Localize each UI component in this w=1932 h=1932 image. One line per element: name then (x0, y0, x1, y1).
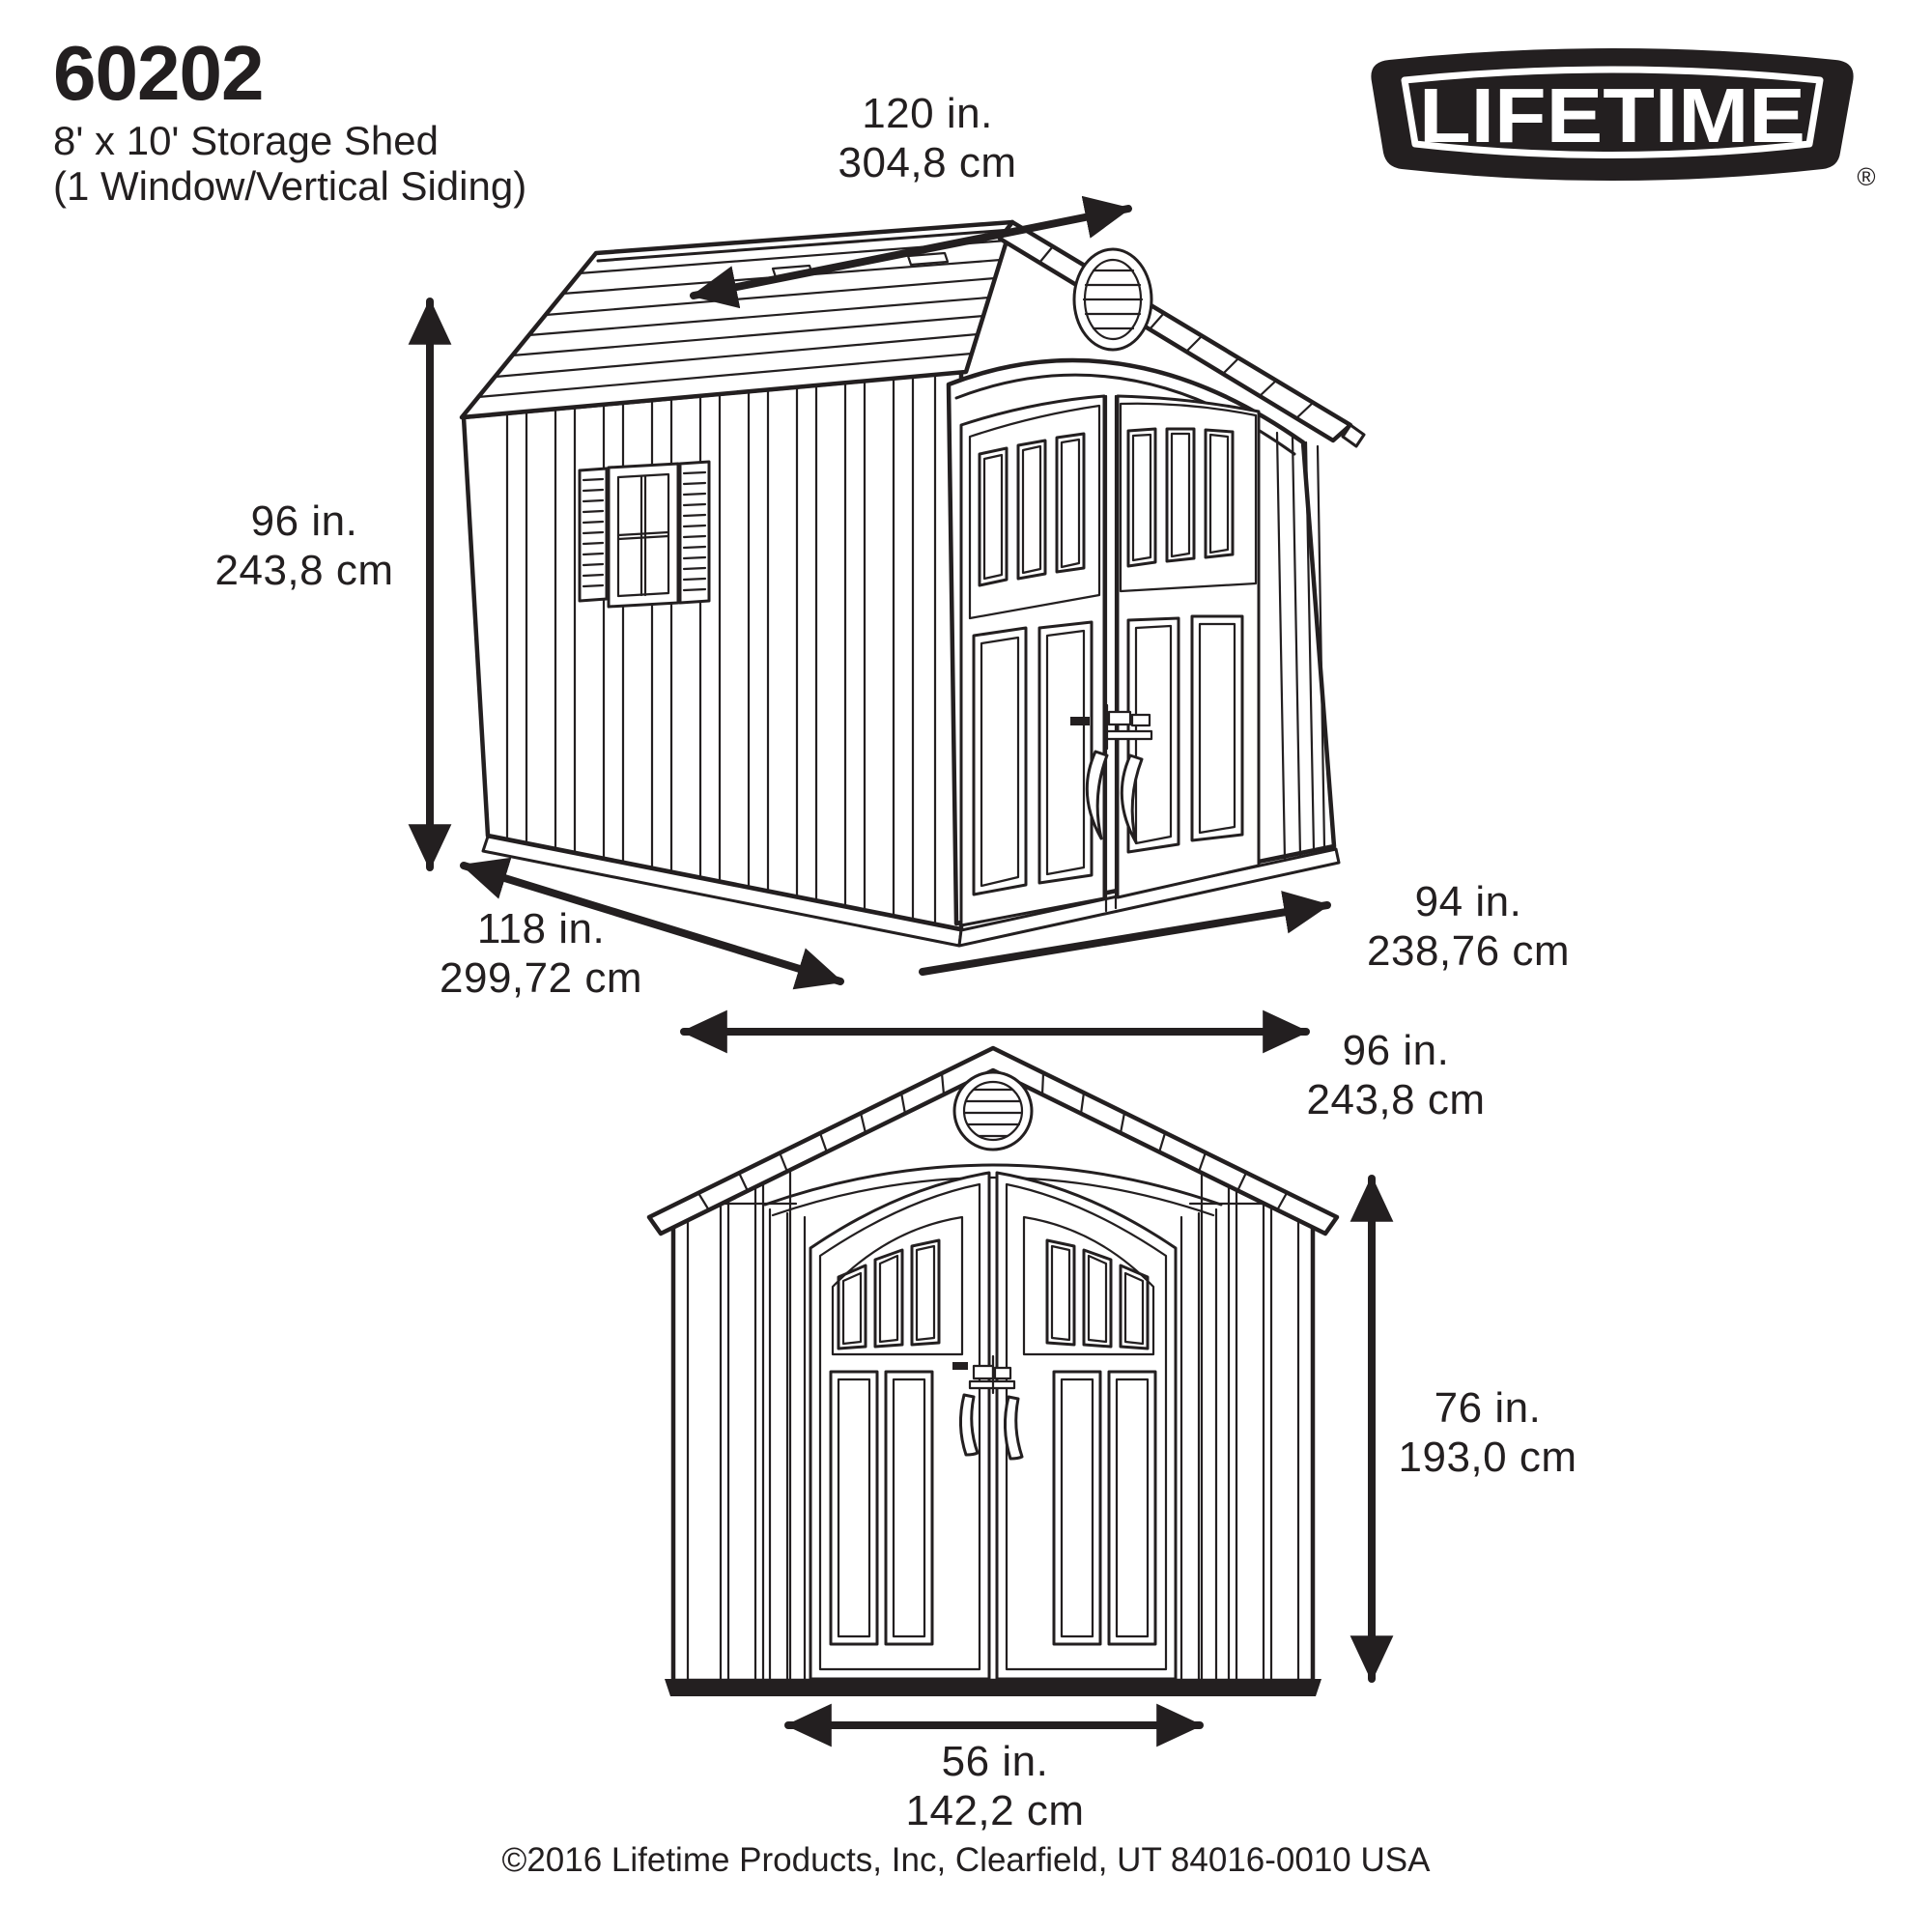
dim-depth-in: 118 in. (348, 904, 734, 953)
dim-roof-length-in: 120 in. (734, 89, 1121, 138)
dim-door-height: 76 in. 193,0 cm (1343, 1383, 1633, 1482)
copyright-line: ©2016 Lifetime Products, Inc, Clearfield… (415, 1841, 1517, 1880)
dim-depth: 118 in. 299,72 cm (348, 904, 734, 1003)
dim-wall-height: 96 in. 243,8 cm (155, 497, 454, 595)
front-view-floor (665, 1679, 1321, 1696)
dim-roof-length: 120 in. 304,8 cm (734, 89, 1121, 187)
dim-wall-height-in: 96 in. (155, 497, 454, 546)
dim-door-height-cm: 193,0 cm (1343, 1433, 1633, 1482)
registered-mark: ® (1857, 162, 1875, 191)
dim-overall-width: 96 in. 243,8 cm (1275, 1026, 1517, 1124)
dim-overall-width-in: 96 in. (1275, 1026, 1517, 1075)
dim-front-width-in: 94 in. (1265, 877, 1671, 926)
dim-depth-cm: 299,72 cm (348, 953, 734, 1003)
dim-door-width: 56 in. 142,2 cm (802, 1737, 1188, 1835)
dim-overall-width-cm: 243,8 cm (1275, 1075, 1517, 1124)
dim-door-width-cm: 142,2 cm (802, 1786, 1188, 1835)
product-name: 8' x 10' Storage Shed (53, 118, 526, 163)
product-variant: (1 Window/Vertical Siding) (53, 163, 526, 209)
shed-3d-view (462, 222, 1364, 946)
dim-door-height-in: 76 in. (1343, 1383, 1633, 1433)
dimension-diagram-page: LIFETIME ® 60202 8' x 10' Storage Shed (… (0, 0, 1932, 1932)
model-number: 60202 (53, 29, 526, 118)
title-block: 60202 8' x 10' Storage Shed (1 Window/Ve… (53, 29, 526, 209)
shed-front-view (649, 1048, 1337, 1696)
dim-front-width: 94 in. 238,76 cm (1265, 877, 1671, 976)
side-window (580, 462, 709, 607)
window-shutter-left (580, 469, 607, 601)
logo-text: LIFETIME (1419, 72, 1805, 158)
dim-wall-height-cm: 243,8 cm (155, 546, 454, 595)
dim-roof-length-cm: 304,8 cm (734, 138, 1121, 187)
lifetime-logo: LIFETIME ® (1371, 48, 1875, 191)
gable-vent-3d (1074, 249, 1151, 350)
dim-front-width-cm: 238,76 cm (1265, 926, 1671, 976)
dim-door-width-in: 56 in. (802, 1737, 1188, 1786)
gable-vent-front (954, 1072, 1032, 1150)
